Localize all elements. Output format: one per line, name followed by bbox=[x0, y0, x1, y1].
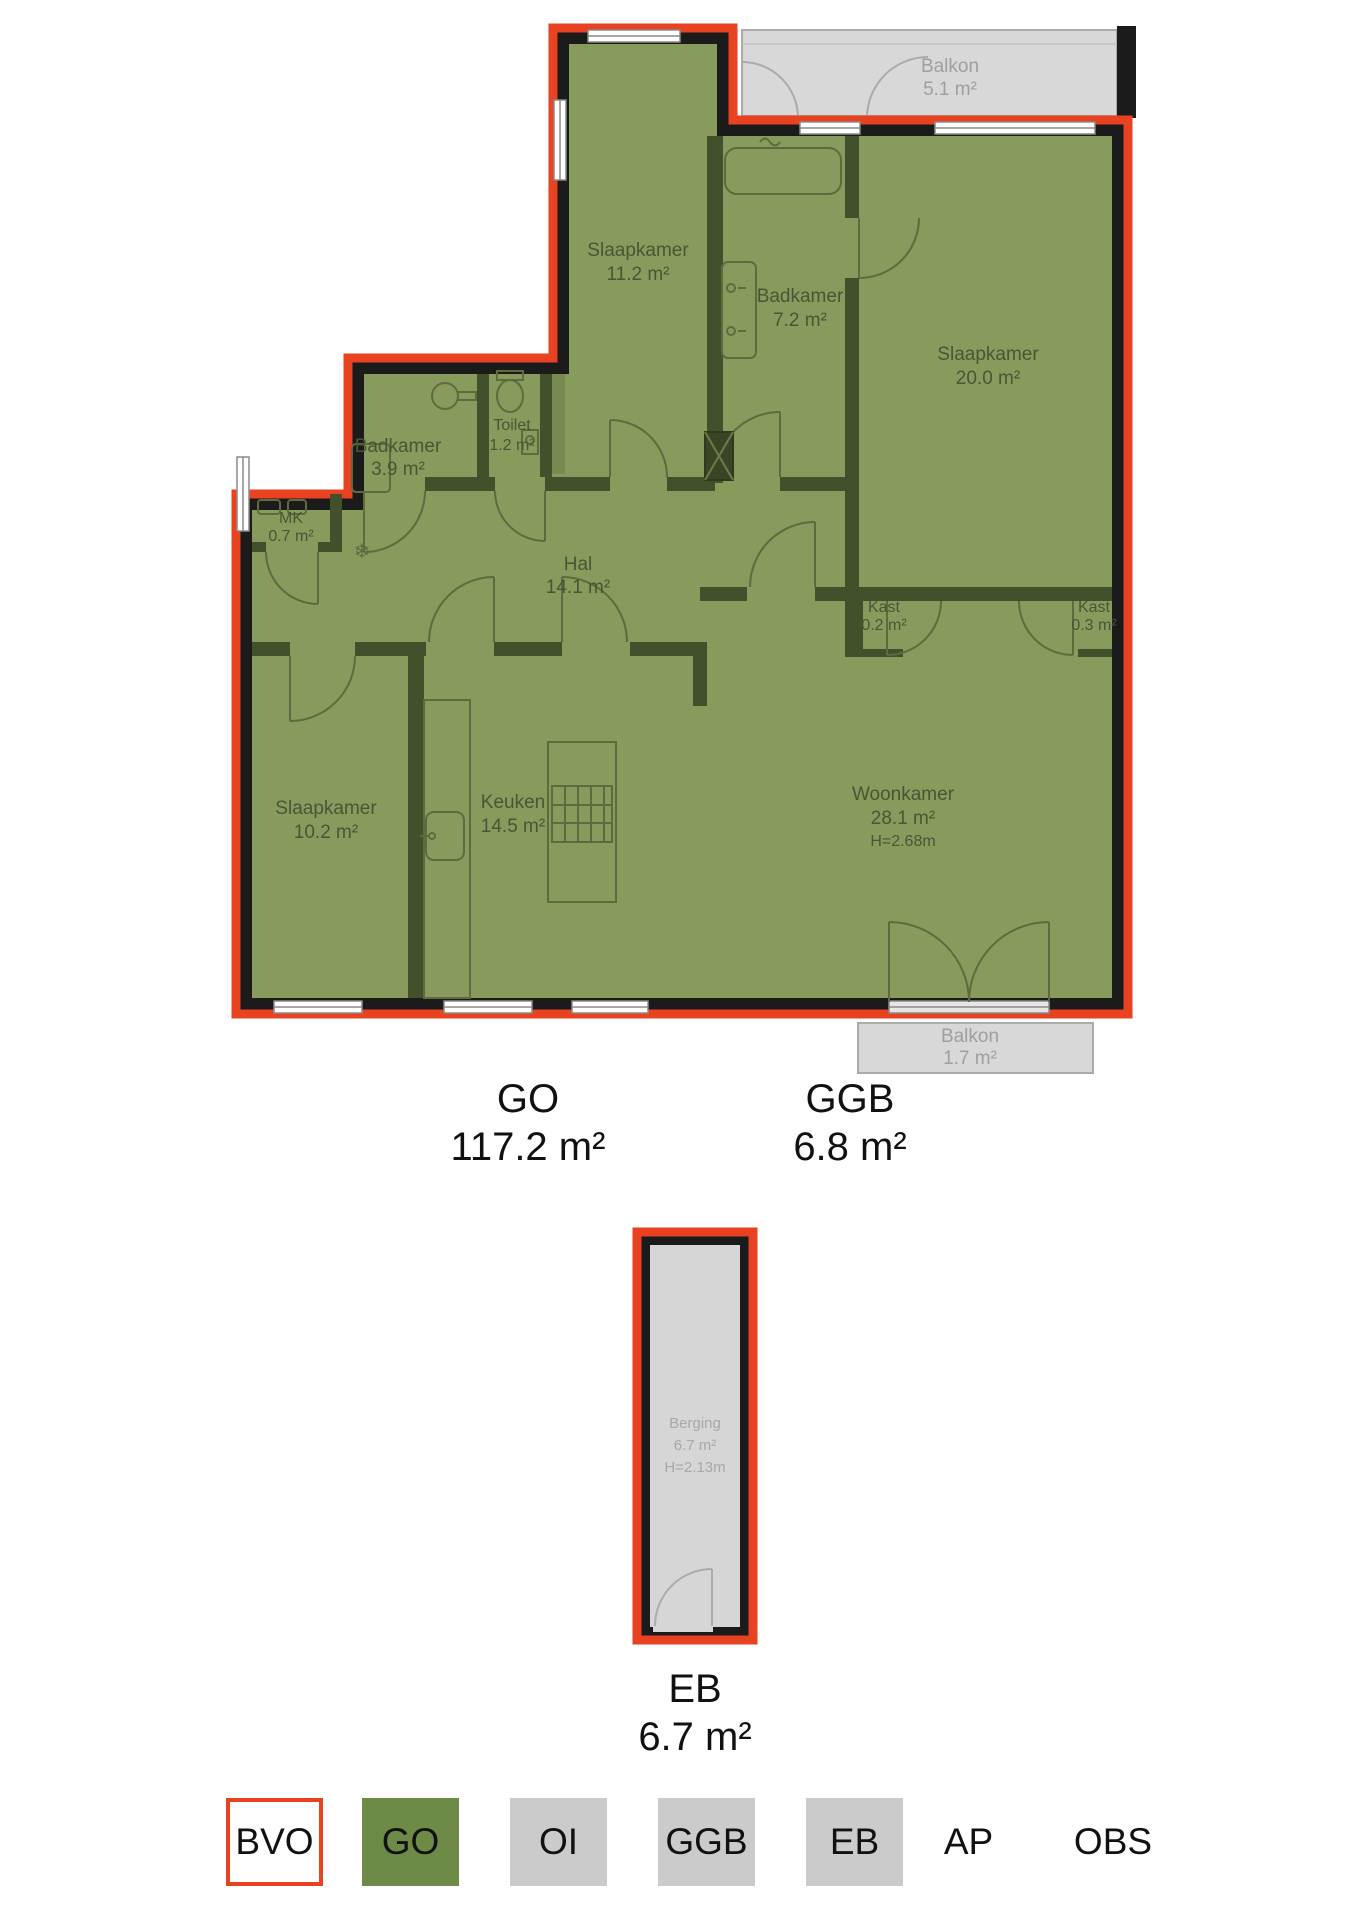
legend-bvo-label: BVO bbox=[235, 1821, 313, 1863]
badkamer1-label: Badkamer bbox=[757, 286, 844, 307]
woonkamer-label: Woonkamer bbox=[852, 784, 955, 805]
ggb-area: 6.8 m² bbox=[793, 1125, 906, 1169]
berging-height: H=2.13m bbox=[664, 1459, 725, 1476]
kast2-label: Kast bbox=[1078, 599, 1111, 616]
legend-ap-label: AP bbox=[944, 1821, 993, 1863]
balcony-wall-end bbox=[1117, 26, 1136, 118]
hal-area: 14.1 m² bbox=[546, 577, 610, 598]
legend-eb: EB bbox=[806, 1798, 903, 1886]
slaapkamer3-label: Slaapkamer bbox=[275, 798, 377, 819]
legend-obs-label: OBS bbox=[1074, 1821, 1152, 1863]
legend-ggb: GGB bbox=[658, 1798, 755, 1886]
balcony-bottom: Balkon 1.7 m² bbox=[858, 1023, 1093, 1073]
slaapkamer3-area: 10.2 m² bbox=[294, 822, 358, 843]
slaapkamer1-area: 11.2 m² bbox=[606, 264, 669, 285]
legend-obs: OBS bbox=[1058, 1798, 1168, 1886]
kast1-area: 0.2 m² bbox=[861, 617, 907, 634]
storage-unit: Berging 6.7 m² H=2.13m EB 6.7 m² bbox=[637, 1232, 753, 1759]
kast2-area: 0.3 m² bbox=[1071, 617, 1117, 634]
mk-label: MK bbox=[279, 510, 303, 527]
go-area bbox=[252, 44, 1112, 998]
go-caption: GO bbox=[497, 1077, 559, 1121]
eb-caption: EB bbox=[668, 1667, 721, 1711]
balkon-top-label: Balkon bbox=[921, 56, 979, 77]
floorplan-drawing: Balkon 5.1 m² bbox=[0, 0, 1358, 1770]
legend-oi-label: OI bbox=[539, 1821, 578, 1863]
floorplan-page: Balkon 5.1 m² bbox=[0, 0, 1358, 1920]
slaapkamer2-area: 20.0 m² bbox=[956, 368, 1020, 389]
slaapkamer1-label: Slaapkamer bbox=[587, 240, 689, 261]
legend-ap: AP bbox=[920, 1798, 1017, 1886]
berging-area: 6.7 m² bbox=[674, 1437, 717, 1454]
hal-label: Hal bbox=[564, 554, 593, 575]
legend-eb-label: EB bbox=[830, 1821, 879, 1863]
badkamer2-label: Badkamer bbox=[355, 436, 442, 457]
mk-area: 0.7 m² bbox=[268, 528, 314, 545]
balkon-bottom-area: 1.7 m² bbox=[943, 1048, 997, 1069]
toilet-area: 1.2 m² bbox=[489, 437, 535, 454]
niche bbox=[552, 374, 565, 474]
snowflake-icon: ❄ bbox=[354, 541, 371, 563]
legend-ggb-label: GGB bbox=[665, 1821, 747, 1863]
woonkamer-height: H=2.68m bbox=[870, 833, 935, 850]
balkon-bottom-label: Balkon bbox=[941, 1026, 999, 1047]
legend-oi: OI bbox=[510, 1798, 607, 1886]
toilet-label: Toilet bbox=[493, 417, 531, 434]
woonkamer-area: 28.1 m² bbox=[871, 808, 935, 829]
berging-label: Berging bbox=[669, 1415, 721, 1432]
legend-go-label: GO bbox=[382, 1821, 440, 1863]
badkamer2-area: 3.9 m² bbox=[371, 459, 425, 480]
captions: GO 117.2 m² GGB 6.8 m² bbox=[451, 1077, 907, 1169]
legend-bvo: BVO bbox=[226, 1798, 323, 1886]
ggb-caption: GGB bbox=[806, 1077, 895, 1121]
slaapkamer2-label: Slaapkamer bbox=[937, 344, 1039, 365]
go-area: 117.2 m² bbox=[451, 1125, 606, 1169]
legend-go: GO bbox=[362, 1798, 459, 1886]
apartment-outline bbox=[236, 28, 1128, 1014]
keuken-area: 14.5 m² bbox=[481, 816, 545, 837]
badkamer1-area: 7.2 m² bbox=[773, 310, 827, 331]
eb-area: 6.7 m² bbox=[638, 1715, 751, 1759]
kast1-label: Kast bbox=[868, 599, 901, 616]
balkon-top-area: 5.1 m² bbox=[923, 79, 977, 100]
balcony-top: Balkon 5.1 m² bbox=[742, 26, 1136, 118]
keuken-label: Keuken bbox=[481, 792, 545, 813]
